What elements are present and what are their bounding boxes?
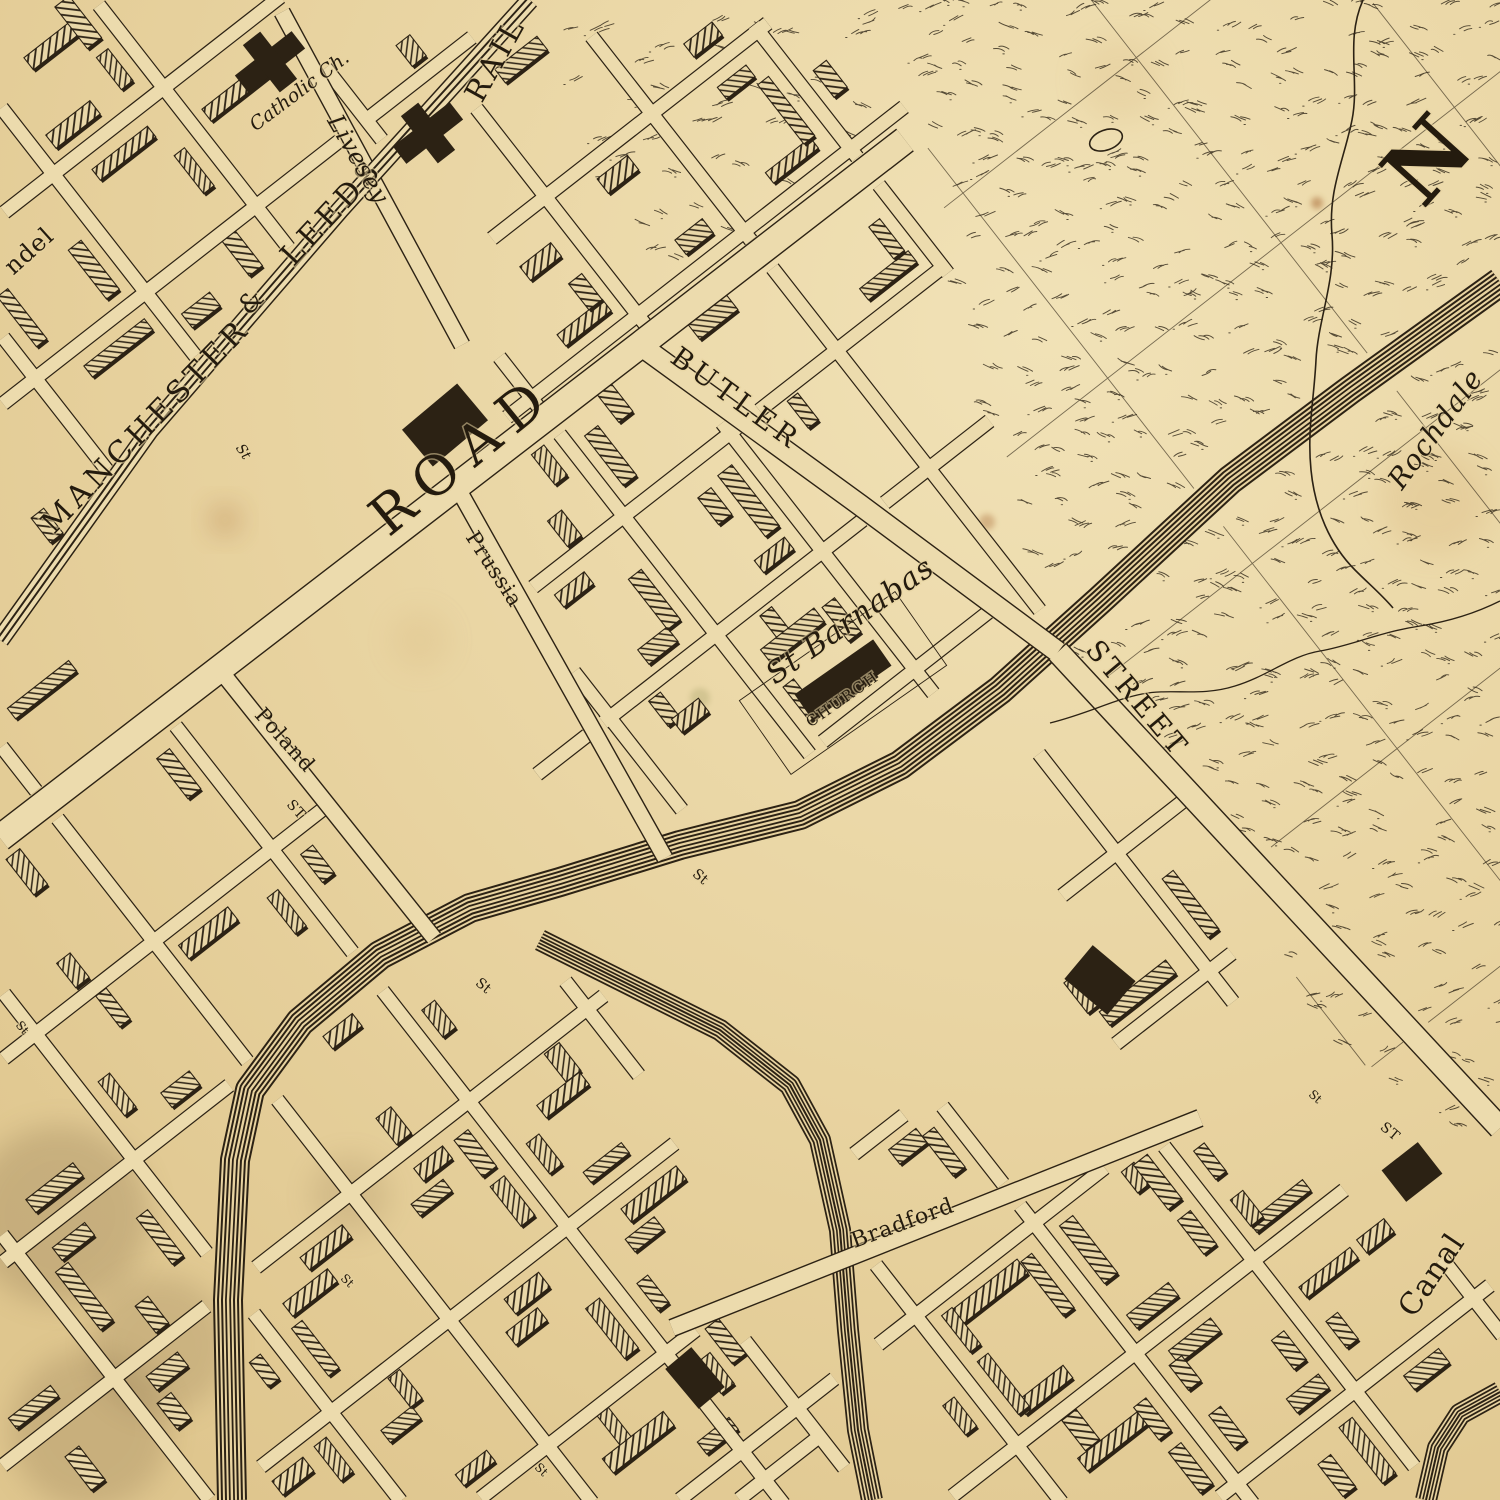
map-canvas: MANCHESTER&LEEDSRAILROADBUTLERSt Barnaba… bbox=[0, 0, 1500, 1500]
antique-street-map: MANCHESTER&LEEDSRAILROADBUTLERSt Barnaba… bbox=[0, 0, 1500, 1500]
